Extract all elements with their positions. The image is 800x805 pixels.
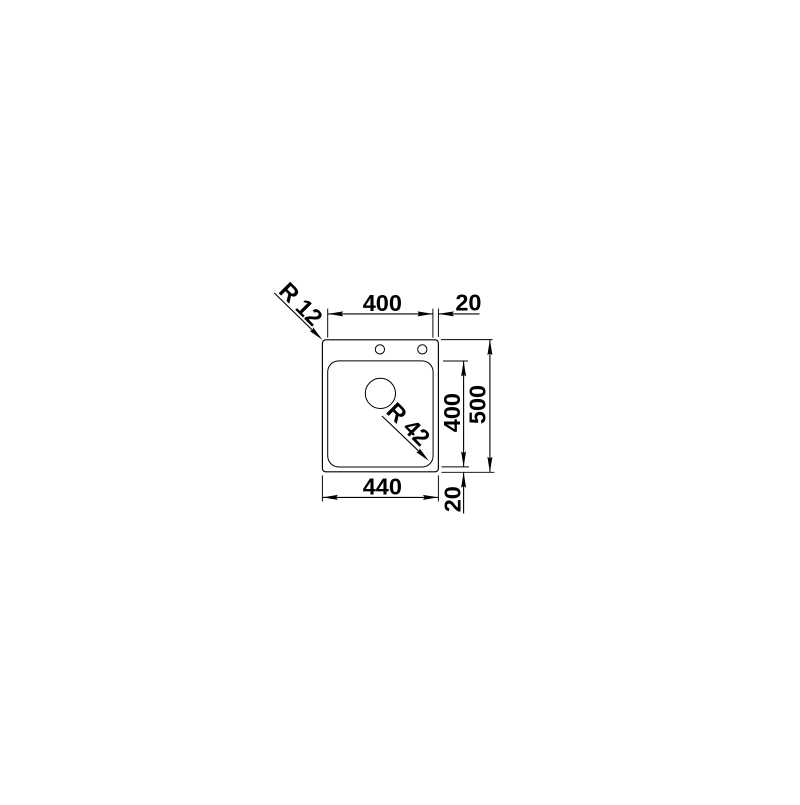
svg-text:20: 20	[455, 289, 481, 315]
svg-text:440: 440	[363, 474, 402, 500]
svg-text:500: 500	[465, 385, 491, 424]
svg-text:400: 400	[439, 393, 465, 432]
svg-text:20: 20	[439, 486, 465, 512]
svg-text:400: 400	[363, 290, 402, 316]
